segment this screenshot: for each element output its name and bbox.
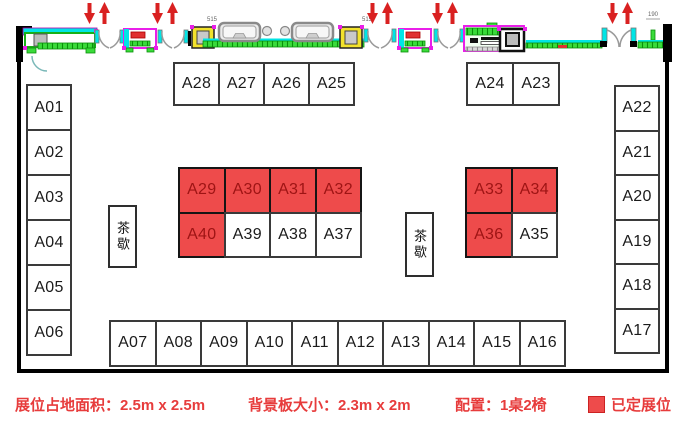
side-table-icon-1 [263,27,272,36]
column-dim-label: 515 [207,17,218,23]
legend-configuration: 配置：1桌2椅 [455,394,547,415]
right-wall-corner: 190 [638,12,672,62]
booth-A26: A26 [263,62,310,106]
booth-A09: A09 [200,320,248,367]
booth-A07: A07 [109,320,157,367]
booth-A25: A25 [308,62,355,106]
legend-booked-label: 已定展位 [611,394,671,415]
side-table-icon-2 [281,27,290,36]
sofa-icon-2 [292,23,333,41]
booth-A11: A11 [291,320,339,367]
booth-A31: A31 [269,167,317,214]
arrow-up-icon [99,2,110,24]
arrow-up-icon [447,2,458,24]
door-arc-3 [364,29,396,48]
booth-A29: A29 [178,167,226,214]
tea-break-area-right: 茶歇 [405,212,434,277]
door-dim-label: 190 [648,12,659,18]
legend: 展位占地面积：2.5m x 2.5m 背景板大小：2.3m x 2m 配置：1桌… [0,391,690,417]
booth-row-right-2: A36A35 [465,212,558,259]
booth-A04: A04 [26,219,72,266]
booth-row-right-1: A33A34 [465,167,558,214]
legend-booth-area: 展位占地面积：2.5m x 2.5m [15,394,205,415]
door-arc-4 [434,29,464,48]
door-arc-5 [600,28,637,47]
arrow-up-icon [167,2,178,24]
booth-A20: A20 [614,174,660,221]
booth-A08: A08 [155,320,203,367]
legend-backdrop-size: 背景板大小：2.3m x 2m [248,394,411,415]
booth-block-center: A29A30A31A32 A40A39A38A37 [178,167,362,258]
door-swing-arc [32,56,47,71]
tea-break-area-left: 茶歇 [108,205,137,268]
booth-A24: A24 [466,62,514,106]
booth-A17: A17 [614,308,660,355]
booth-row-bottom: A07A08A09A10A11A12A13A14A15A16 [109,320,566,367]
booth-A05: A05 [26,264,72,311]
exhibition-floor-plan: 515 515 [0,0,690,426]
booth-row-top-right: A24A23 [466,62,560,106]
booth-row-top-middle: A28A27A26A25 [173,62,355,106]
booth-block-right: A33A34 A36A35 [465,167,558,258]
arrow-up-icon [622,2,633,24]
booth-A38: A38 [269,212,317,259]
booth-A36: A36 [465,212,513,259]
booth-A18: A18 [614,263,660,310]
sofa-icon-1 [219,23,260,41]
kiosk-stand-1 [122,29,158,52]
booked-swatch [588,396,605,413]
booth-A10: A10 [246,320,294,367]
booth-A02: A02 [26,129,72,176]
booth-A16: A16 [519,320,567,367]
booth-A39: A39 [224,212,272,259]
booth-A19: A19 [614,219,660,266]
booth-A23: A23 [512,62,560,106]
booth-A37: A37 [315,212,363,259]
booth-A40: A40 [178,212,226,259]
booth-A15: A15 [473,320,521,367]
arrow-down-icon [152,3,163,24]
booth-A28: A28 [173,62,220,106]
booth-A33: A33 [465,167,513,214]
booth-column-left: A01A02A03A04A05A06 [26,84,72,356]
reception-desk-left [23,28,98,71]
booth-row-center-1: A29A30A31A32 [178,167,362,214]
door-arc-2 [158,30,191,48]
kiosk-stand-2 [397,29,433,52]
booth-A14: A14 [428,320,476,367]
booth-A32: A32 [315,167,363,214]
arrow-down-icon [84,3,95,24]
booth-A03: A03 [26,174,72,221]
booth-A27: A27 [218,62,265,106]
booth-A34: A34 [511,167,559,214]
arrow-down-icon [607,3,618,24]
entrance-arrows [84,2,633,24]
legend-booked: 已定展位 [588,394,671,415]
planter-strip-right [526,40,602,48]
arrow-up-icon [382,2,393,24]
door-arc-1 [95,30,124,48]
booth-column-right: A22A21A20A19A18A17 [614,85,660,354]
arrow-down-icon [432,3,443,24]
booth-A06: A06 [26,309,72,356]
booth-A12: A12 [337,320,385,367]
column-marker-3 [497,27,527,51]
booth-A35: A35 [511,212,559,259]
booth-A13: A13 [382,320,430,367]
booth-A21: A21 [614,130,660,177]
booth-A01: A01 [26,84,72,131]
booth-A30: A30 [224,167,272,214]
booth-row-center-2: A40A39A38A37 [178,212,362,259]
booth-A22: A22 [614,85,660,132]
